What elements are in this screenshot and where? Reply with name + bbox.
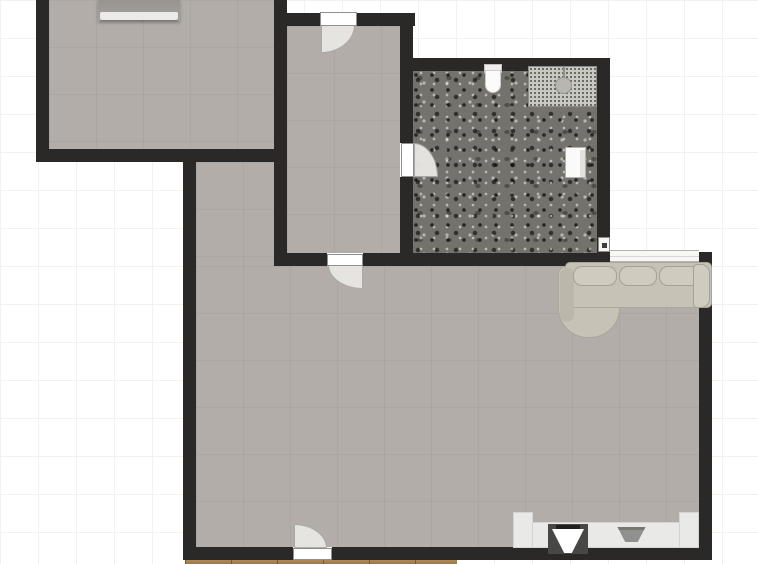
shower-head-icon — [555, 77, 572, 94]
bathroom-door[interactable] — [401, 143, 414, 177]
toilet[interactable] — [484, 64, 502, 93]
sofa-cushion — [573, 266, 617, 286]
kitchen-sink[interactable] — [548, 524, 588, 554]
living-room-left-wall[interactable] — [183, 149, 196, 560]
hallway-floor[interactable] — [287, 26, 400, 253]
sofa[interactable] — [558, 262, 712, 340]
kitchen-counter[interactable] — [513, 512, 699, 548]
hallway-door[interactable] — [327, 254, 363, 266]
wall-fixture-dot — [602, 243, 607, 248]
living-room-bottom-wall[interactable] — [183, 547, 293, 560]
entry-door[interactable] — [320, 12, 357, 26]
counter-cabinet — [679, 512, 699, 548]
hallway-bottom-wall[interactable] — [274, 253, 327, 266]
bathroom-sink[interactable] — [565, 147, 586, 178]
toilet-bowl — [485, 70, 501, 93]
bedroom-floor[interactable] — [49, 0, 274, 149]
sofa-cushion — [619, 266, 657, 286]
counter-cabinet — [513, 512, 533, 548]
sink-basin-icon — [552, 529, 584, 553]
hallway-top-wall[interactable] — [274, 13, 321, 26]
hallway-left-wall[interactable] — [274, 0, 287, 266]
sofa-armrest-right — [693, 264, 710, 308]
faucet-icon — [556, 525, 580, 529]
shower[interactable] — [528, 66, 597, 107]
bed[interactable] — [98, 0, 180, 21]
balcony-door[interactable] — [293, 548, 332, 560]
counter-top — [513, 522, 699, 548]
sink-basin — [580, 150, 585, 177]
hallway-right-wall[interactable] — [400, 13, 413, 143]
window[interactable] — [610, 250, 699, 262]
living-room-bottom-wall[interactable] — [332, 547, 712, 560]
bedroom-bottom-wall[interactable] — [36, 149, 287, 162]
bed-sheet — [100, 12, 178, 20]
bathroom-right-wall[interactable] — [597, 58, 610, 266]
wall-fixture[interactable] — [598, 237, 610, 252]
bedroom-left-wall[interactable] — [36, 0, 49, 162]
floor-plan[interactable] — [0, 0, 758, 564]
sofa-armrest-left — [560, 268, 574, 322]
